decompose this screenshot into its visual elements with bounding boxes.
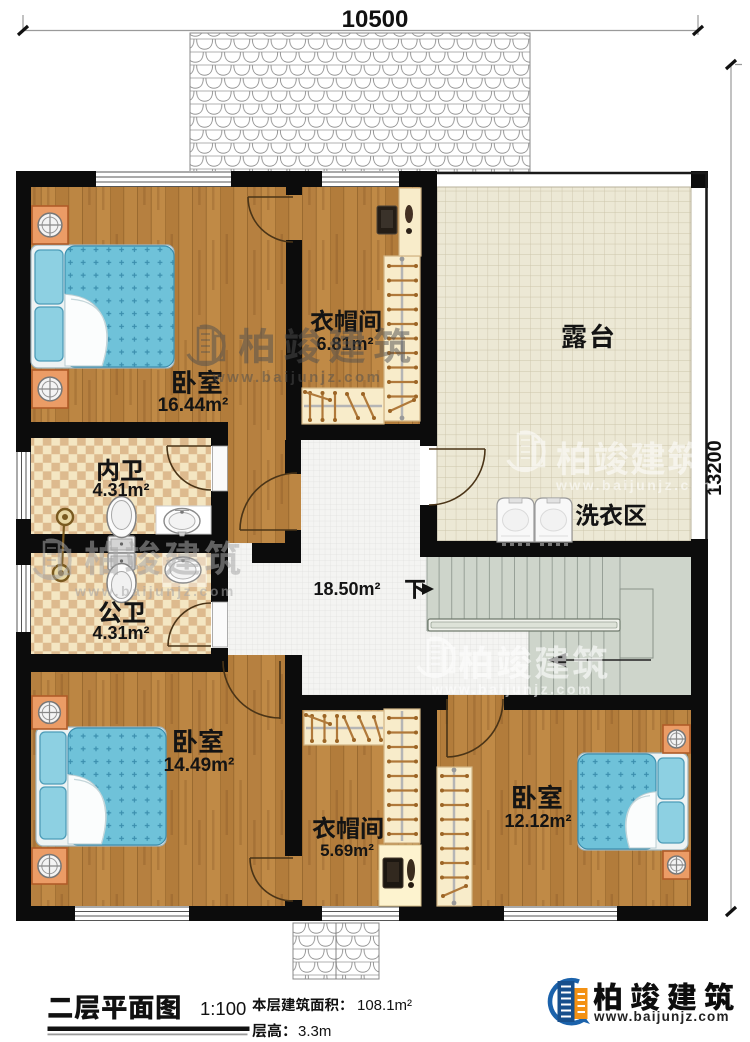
svg-text:4.31m²: 4.31m² (92, 480, 149, 500)
svg-text:10500: 10500 (342, 6, 409, 33)
svg-text:www.baijunjz.com: www.baijunjz.com (74, 583, 236, 599)
svg-text:12.12m²: 12.12m² (504, 811, 571, 831)
svg-text:14.49m²: 14.49m² (164, 755, 235, 776)
svg-text:16.44m²: 16.44m² (158, 395, 229, 416)
svg-text:108.1m²: 108.1m² (357, 997, 412, 1014)
svg-text:4.31m²: 4.31m² (92, 623, 149, 643)
svg-text:18.50m²: 18.50m² (313, 579, 380, 599)
svg-text:www.baijunjz.com: www.baijunjz.com (212, 369, 382, 386)
svg-text:3.3m: 3.3m (298, 1023, 331, 1040)
svg-text:www.baijunjz.com: www.baijunjz.com (555, 477, 717, 493)
svg-text:1:100: 1:100 (200, 998, 246, 1019)
svg-text:5.69m²: 5.69m² (320, 841, 374, 860)
svg-text:www.baijunjz.com: www.baijunjz.com (593, 1009, 730, 1024)
svg-text:www.baijunjz.com: www.baijunjz.com (431, 681, 593, 697)
